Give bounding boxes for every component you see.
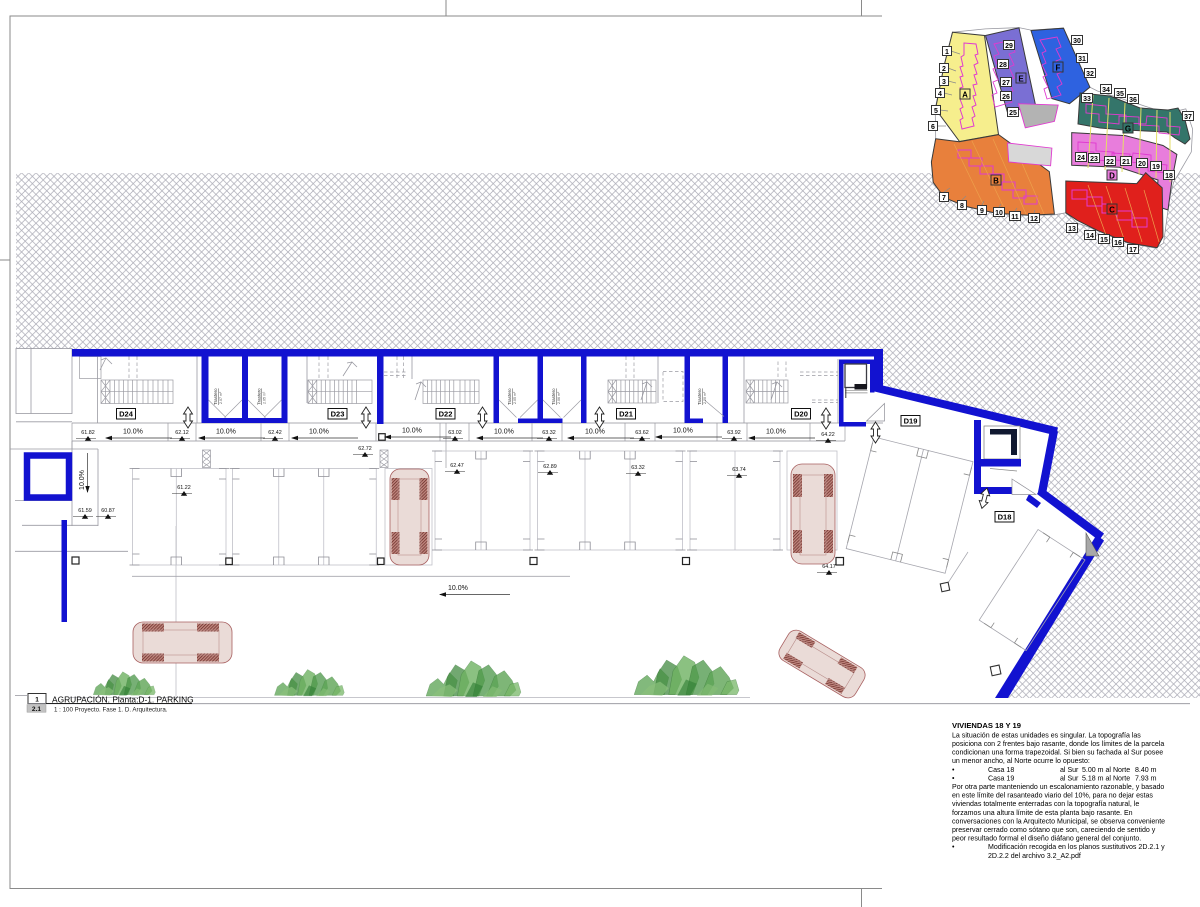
svg-text:12: 12 xyxy=(1030,216,1038,223)
svg-text:33: 33 xyxy=(1083,96,1091,103)
svg-text:al Sur: al Sur xyxy=(1060,767,1079,774)
svg-text:16: 16 xyxy=(1114,240,1122,247)
svg-text:en este límite del rasanteado: en este límite del rasanteado viario del… xyxy=(952,793,1153,800)
svg-text:2.07 m²: 2.07 m² xyxy=(219,391,223,404)
svg-text:Casa 19: Casa 19 xyxy=(988,775,1014,782)
svg-text:4: 4 xyxy=(938,91,942,98)
svg-text:viviendas totalmente enterrada: viviendas totalmente enterradas con la t… xyxy=(952,801,1139,808)
svg-text:31: 31 xyxy=(1078,56,1086,63)
svg-text:64.22: 64.22 xyxy=(821,432,835,438)
svg-text:60.87: 60.87 xyxy=(101,508,115,514)
svg-text:24: 24 xyxy=(1077,155,1085,162)
svg-text:27: 27 xyxy=(1002,80,1010,87)
svg-text:14: 14 xyxy=(1086,233,1094,240)
svg-text:23: 23 xyxy=(1090,156,1098,163)
svg-text:condicionan una forma trapezoi: condicionan una forma trapezoidal. Si bi… xyxy=(952,750,1163,757)
svg-text:2.05 m²: 2.05 m² xyxy=(263,391,267,404)
svg-text:C: C xyxy=(1109,206,1115,215)
svg-text:25: 25 xyxy=(1009,110,1017,117)
svg-text:Trastero: Trastero xyxy=(213,388,218,405)
svg-text:63.32: 63.32 xyxy=(631,465,645,471)
svg-text:10.0%: 10.0% xyxy=(494,429,514,436)
svg-text:forzamos una altura límite de: forzamos una altura límite de esta plant… xyxy=(952,810,1133,817)
svg-text:10.0%: 10.0% xyxy=(766,429,786,436)
svg-text:63.62: 63.62 xyxy=(635,430,649,436)
svg-text:6: 6 xyxy=(931,124,935,131)
svg-text:preservar cerrado como sótano: preservar cerrado como sótano que son, c… xyxy=(952,827,1156,834)
svg-text:11: 11 xyxy=(1011,214,1019,221)
svg-text:64.17: 64.17 xyxy=(822,564,836,570)
svg-text:17: 17 xyxy=(1129,247,1137,254)
svg-text:63.02: 63.02 xyxy=(448,430,462,436)
svg-text:1: 1 xyxy=(945,49,949,56)
svg-text:10.0%: 10.0% xyxy=(402,428,422,435)
svg-text:peor resultado formal el diseñ: peor resultado formal el diseño diáfano … xyxy=(952,836,1141,843)
svg-text:D21: D21 xyxy=(619,410,633,419)
svg-text:5: 5 xyxy=(934,108,938,115)
svg-text:1 : 100 Proyecto. Fase 1. D. A: 1 : 100 Proyecto. Fase 1. D. Arquitectur… xyxy=(54,706,168,713)
svg-text:22: 22 xyxy=(1106,159,1114,166)
svg-text:63.32: 63.32 xyxy=(542,430,556,436)
svg-text:62.12: 62.12 xyxy=(175,430,189,436)
svg-text:28: 28 xyxy=(999,62,1007,69)
svg-text:35: 35 xyxy=(1116,91,1124,98)
svg-text:8: 8 xyxy=(960,203,964,210)
svg-text:5.00 m al Norte: 5.00 m al Norte xyxy=(1082,767,1130,774)
svg-text:D18: D18 xyxy=(998,513,1012,522)
svg-text:62.47: 62.47 xyxy=(450,463,464,469)
svg-text:F: F xyxy=(1056,64,1061,73)
svg-text:10.0%: 10.0% xyxy=(309,429,329,436)
svg-text:8.40 m: 8.40 m xyxy=(1135,767,1157,774)
svg-text:63.74: 63.74 xyxy=(732,467,746,473)
svg-text:10.0%: 10.0% xyxy=(216,429,236,436)
svg-text:34: 34 xyxy=(1102,87,1110,94)
svg-text:7: 7 xyxy=(942,195,946,202)
svg-text:La situación de estas unidades: La situación de estas unidades es singul… xyxy=(952,732,1141,739)
svg-text:62.42: 62.42 xyxy=(268,430,282,436)
svg-text:2.20 m²: 2.20 m² xyxy=(703,391,707,404)
svg-text:VIVIENDAS 18 Y 19: VIVIENDAS 18 Y 19 xyxy=(952,721,1021,730)
svg-text:2: 2 xyxy=(942,66,946,73)
svg-text:Trastero: Trastero xyxy=(507,388,512,405)
svg-text:Modificación recogida en los p: Modificación recogida en los planos sust… xyxy=(988,844,1165,851)
svg-text:61.59: 61.59 xyxy=(78,508,92,514)
svg-text:Trastero: Trastero xyxy=(551,388,556,405)
svg-text:E: E xyxy=(1018,75,1024,84)
svg-text:AGRUPACIÓN. Planta:D-1. PARKIN: AGRUPACIÓN. Planta:D-1. PARKING xyxy=(52,694,194,704)
svg-text:2.1: 2.1 xyxy=(32,706,41,713)
svg-text:3: 3 xyxy=(942,79,946,86)
svg-text:36: 36 xyxy=(1129,97,1137,104)
svg-text:61.22: 61.22 xyxy=(177,485,191,491)
svg-text:2D.2.2 del archivo 3.2_A2.pdf: 2D.2.2 del archivo 3.2_A2.pdf xyxy=(988,853,1081,860)
svg-text:18: 18 xyxy=(1165,173,1173,180)
svg-text:10.0%: 10.0% xyxy=(123,429,143,436)
svg-text:D24: D24 xyxy=(119,410,134,419)
svg-text:D: D xyxy=(1109,172,1115,181)
svg-text:10.0%: 10.0% xyxy=(448,585,468,592)
svg-text:D22: D22 xyxy=(439,410,453,419)
svg-text:D19: D19 xyxy=(904,417,918,426)
svg-text:Trastero: Trastero xyxy=(257,388,262,405)
svg-text:5.18 m al Norte: 5.18 m al Norte xyxy=(1082,775,1130,782)
svg-text:21: 21 xyxy=(1122,159,1130,166)
svg-text:B: B xyxy=(993,177,999,186)
svg-text:A: A xyxy=(962,91,968,100)
svg-text:15: 15 xyxy=(1100,237,1108,244)
svg-text:10: 10 xyxy=(995,210,1003,217)
svg-text:al Sur: al Sur xyxy=(1060,775,1079,782)
svg-text:62.72: 62.72 xyxy=(358,446,372,452)
svg-text:37: 37 xyxy=(1184,114,1192,121)
svg-text:10.0%: 10.0% xyxy=(585,429,605,436)
svg-text:26: 26 xyxy=(1002,94,1010,101)
svg-text:conversaciones con la Arquitec: conversaciones con la Arquitecto Municip… xyxy=(952,818,1165,825)
svg-text:20: 20 xyxy=(1138,161,1146,168)
svg-text:Casa 18: Casa 18 xyxy=(988,767,1014,774)
svg-text:30: 30 xyxy=(1073,38,1081,45)
svg-text:61.82: 61.82 xyxy=(81,430,95,436)
svg-text:G: G xyxy=(1125,125,1131,134)
svg-text:Trastero: Trastero xyxy=(697,388,702,405)
svg-text:19: 19 xyxy=(1152,164,1160,171)
svg-text:1: 1 xyxy=(35,697,39,704)
svg-text:D23: D23 xyxy=(331,410,345,419)
svg-text:29: 29 xyxy=(1005,43,1013,50)
svg-text:2.06 m²: 2.06 m² xyxy=(557,391,561,404)
svg-text:10.0%: 10.0% xyxy=(79,470,86,490)
svg-text:10.0%: 10.0% xyxy=(673,428,693,435)
svg-text:63.92: 63.92 xyxy=(727,430,741,436)
svg-text:9: 9 xyxy=(980,208,984,215)
svg-text:D20: D20 xyxy=(794,410,808,419)
svg-text:un menor ancho, al Norte ocurr: un menor ancho, al Norte ocurre lo opues… xyxy=(952,758,1090,765)
svg-text:62.89: 62.89 xyxy=(543,464,557,470)
svg-text:posiciona con 2 frentes bajo r: posiciona con 2 frentes bajo rasante, do… xyxy=(952,741,1164,748)
svg-text:13: 13 xyxy=(1068,226,1076,233)
svg-text:7.93 m: 7.93 m xyxy=(1135,775,1157,782)
svg-text:2.05 m²: 2.05 m² xyxy=(513,391,517,404)
svg-text:Por otra parte manteniendo un: Por otra parte manteniendo un escalonami… xyxy=(952,784,1164,791)
svg-text:32: 32 xyxy=(1086,71,1094,78)
